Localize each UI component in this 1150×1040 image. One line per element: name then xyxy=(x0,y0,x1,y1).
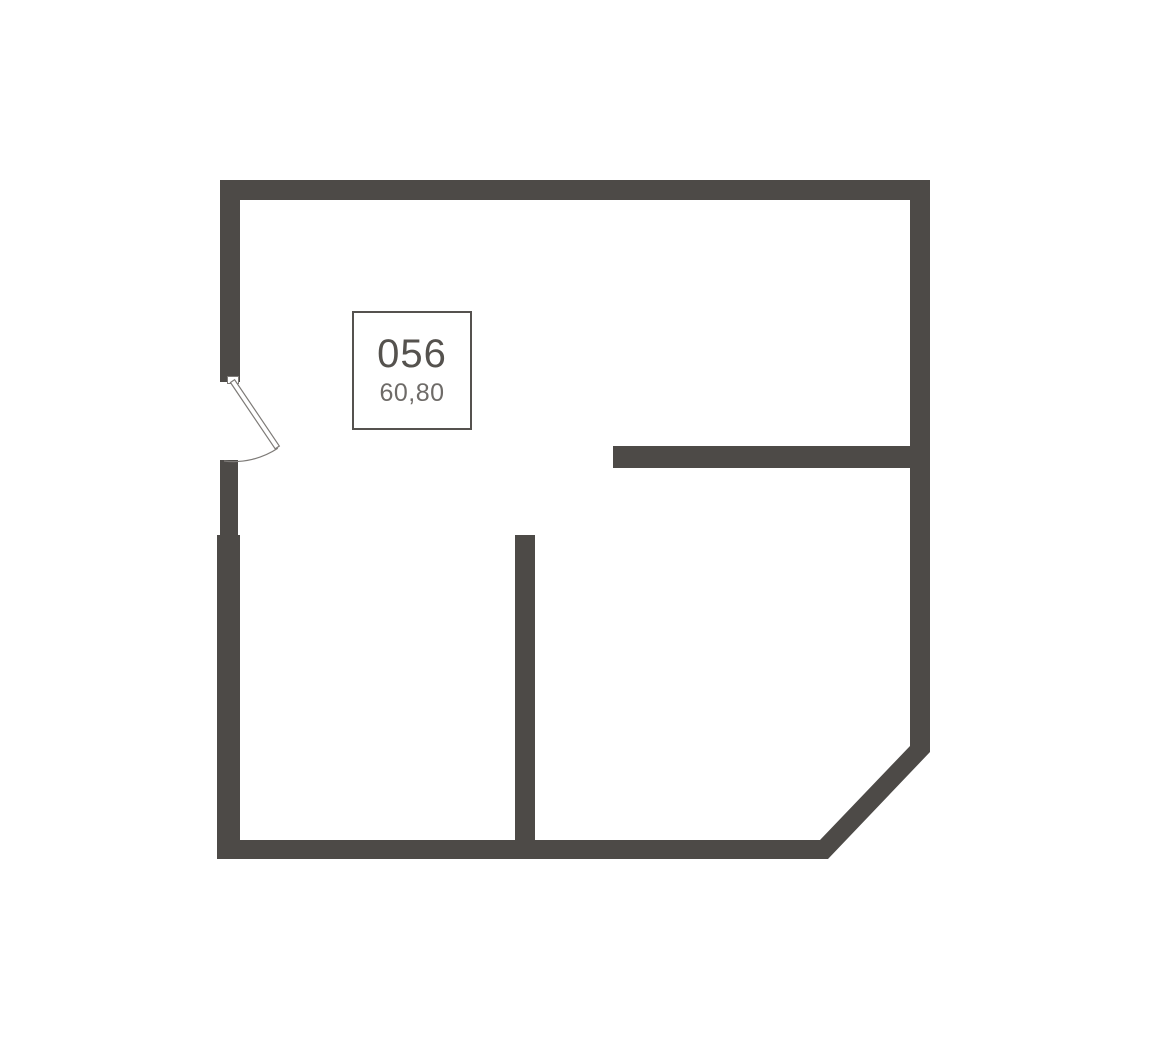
floorplan-svg xyxy=(0,0,1150,1040)
wall-left-upper xyxy=(220,180,240,382)
floorplan-canvas: 056 60,80 xyxy=(0,0,1150,1040)
room-area: 60,80 xyxy=(379,380,444,408)
wall-left-lower xyxy=(217,535,240,859)
door xyxy=(224,377,279,462)
room-label[interactable]: 056 60,80 xyxy=(352,311,472,430)
wall-interior-horizontal xyxy=(613,446,910,468)
walls xyxy=(217,180,930,859)
wall-right-bottom xyxy=(217,180,930,859)
wall-left-mid xyxy=(220,460,238,535)
door-swing-arc-icon xyxy=(224,448,278,461)
wall-interior-vertical xyxy=(515,535,535,840)
room-number: 056 xyxy=(377,333,447,375)
door-leaf xyxy=(230,380,279,449)
wall-top xyxy=(220,180,930,200)
